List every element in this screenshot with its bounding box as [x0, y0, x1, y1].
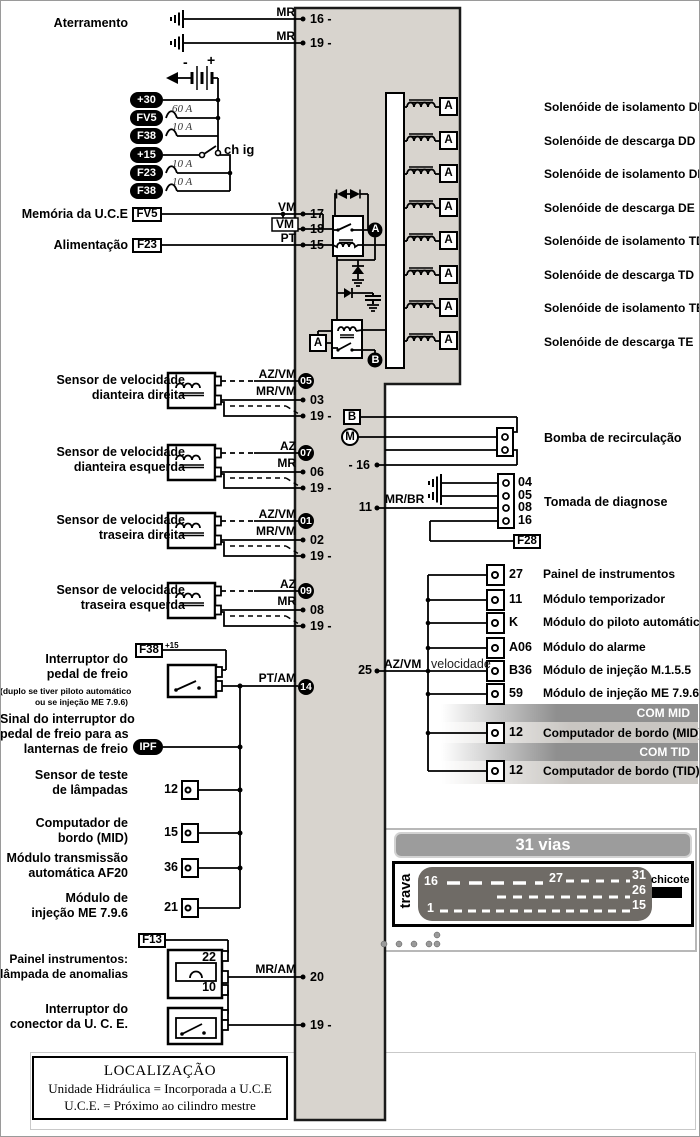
fuse-fv5: FV5	[132, 207, 162, 222]
brake-row3-l1: Módulo de	[0, 891, 128, 905]
ignition-switch-label: ch ig	[224, 143, 254, 157]
brake-row3-l2: injeção ME 7.9.6	[0, 906, 128, 920]
conn31-n1: 1	[427, 901, 434, 915]
brake-circuit	[163, 650, 298, 917]
tag-f38b: F38	[130, 183, 163, 199]
speed-label-4: Módulo de injeção M.1.5.5	[543, 663, 691, 677]
pin-17: 17	[310, 207, 324, 221]
brake-row0-l1: Sensor de teste	[0, 768, 128, 782]
sensor-3-p2: 08	[310, 603, 324, 617]
sensor-3-w2: MR	[246, 594, 296, 608]
sensor-0-l1: Sensor de velocidade	[13, 373, 185, 387]
speed-pin-5: 59	[509, 686, 523, 700]
bomba-label: Bomba de recirculação	[544, 431, 682, 445]
solenoid-label-6: Solenóide de isolamento TE	[544, 301, 700, 315]
conn31-n26: 26	[632, 883, 646, 897]
fuse-rating-10a-2: 10 A	[172, 158, 192, 170]
sensor-2-p3: 19 -	[310, 549, 332, 563]
brake-row0-pin: 12	[150, 782, 178, 796]
battery-plus: +	[207, 53, 215, 67]
speed-label-7: Computador de bordo (TID)	[543, 764, 700, 778]
speed-pin-4: B36	[509, 663, 532, 677]
fuse-f38-brake: F38	[135, 643, 163, 658]
sensor-2-l2: traseira direita	[13, 528, 185, 542]
speed-pin-3: A06	[509, 640, 532, 654]
sol-a-3: A	[440, 199, 457, 215]
solenoid-label-7: Solenóide de descarga TE	[544, 335, 693, 349]
speed-pin-6: 12	[509, 725, 523, 739]
speed-label-6: Computador de bordo (MID)	[543, 726, 700, 740]
speed-label-5: Módulo de injeção ME 7.9.6	[543, 686, 699, 700]
pin-minus16: - 16	[330, 458, 370, 472]
uce-l2: conector da U. C. E.	[0, 1017, 128, 1031]
fuse-f13: F13	[138, 933, 166, 948]
sol-a-2: A	[440, 165, 457, 181]
brake-l1: Interruptor do	[0, 652, 128, 666]
pin-18: 18	[310, 222, 324, 236]
sensor-0-p3: 19 -	[310, 409, 332, 423]
sensor-1-w2: MR	[246, 456, 296, 470]
f38-sup: +15	[165, 639, 179, 653]
decorative-dots	[381, 932, 440, 947]
conn31-n16: 16	[424, 874, 438, 888]
battery-minus: -	[183, 55, 188, 69]
diagnose-label: Tomada de diagnose	[544, 495, 667, 509]
tag-plus30: +30	[130, 92, 163, 108]
pin-20: 20	[310, 970, 324, 984]
brake-row2-pin: 36	[150, 860, 178, 874]
sensor-3-p3: 19 -	[310, 619, 332, 633]
sensor-1-p1: 07	[298, 445, 314, 461]
sensor-0-p1: 05	[298, 373, 314, 389]
solenoid-label-1: Solenóide de descarga DD	[544, 134, 695, 148]
tag-plus15: +15	[130, 147, 163, 163]
sensor-2-p2: 02	[310, 533, 324, 547]
pin-19-uce: 19 -	[310, 1018, 332, 1032]
conn31-n27: 27	[549, 871, 563, 885]
sensor-1-p3: 19 -	[310, 481, 332, 495]
conn31-n15: 15	[632, 898, 646, 912]
speed-label-1: Módulo temporizador	[543, 592, 665, 606]
sol-a-1: A	[440, 132, 457, 148]
fuse-rating-60a: 60 A	[172, 103, 192, 115]
brake-row3-pin: 21	[150, 900, 178, 914]
fuse-rating-10a-3: 10 A	[172, 176, 192, 188]
trava-label: trava	[398, 865, 416, 917]
sensor-1-l2: dianteira esquerda	[13, 460, 185, 474]
diag-pin-08: 08	[518, 500, 532, 514]
brake-row0-l2: de lâmpadas	[0, 783, 128, 797]
connector-pins	[440, 881, 630, 911]
sol-a-6: A	[440, 299, 457, 315]
ground-section-label: Aterramento	[18, 16, 128, 30]
brake-l2: pedal de freio	[0, 667, 128, 681]
badge-a: A	[368, 222, 383, 237]
tag-f23: F23	[130, 165, 163, 181]
brake-s2: pedal de freio para as	[0, 727, 128, 741]
diagnose-circuit	[375, 474, 515, 541]
uce-l1: Interruptor do	[0, 1002, 128, 1016]
speed-label-3: Módulo do alarme	[543, 640, 646, 654]
sensor-2-w2: MR/VM	[246, 524, 296, 538]
sensor-0-w2: MR/VM	[246, 384, 296, 398]
brake-row1-pin: 15	[150, 825, 178, 839]
sensor-0-p2: 03	[310, 393, 324, 407]
sensor-3-p1: 09	[298, 583, 314, 599]
wire-label-mr2: MR	[262, 29, 295, 43]
solenoid-label-3: Solenóide de descarga DE	[544, 201, 695, 215]
brake-row1-l2: bordo (MID)	[0, 831, 128, 845]
sol-a-0: A	[440, 98, 457, 114]
relay-a-box: A	[310, 335, 326, 351]
speed-pin-1: 11	[509, 592, 522, 606]
sensor-3-l1: Sensor de velocidade	[13, 583, 185, 597]
chicote-label: chicote	[651, 873, 690, 887]
solenoid-label-0: Solenóide de isolamento DD	[544, 100, 700, 114]
speed-tag: velocidade	[431, 657, 491, 671]
lamp-pin-22: 22	[194, 950, 216, 964]
memoria-label: Memória da U.C.E	[0, 207, 128, 221]
ipf-tag: IPF	[133, 739, 163, 755]
sensor-1-w1: AZ	[246, 439, 296, 453]
diag-pin-16: 16	[518, 513, 532, 527]
pin-16: 16 -	[310, 12, 332, 26]
fuse-rating-10a-1: 10 A	[172, 121, 192, 133]
option-connectors	[182, 781, 243, 917]
bomba-m-label: M	[342, 430, 358, 444]
pin-14: 14	[298, 679, 314, 695]
wire-azvm: AZ/VM	[384, 657, 421, 671]
tag-f38: F38	[130, 128, 163, 144]
junction-bar	[386, 93, 404, 368]
speed-label-0: Painel de instrumentos	[543, 567, 675, 581]
wire-pt: PT	[268, 231, 296, 245]
sol-a-5: A	[440, 266, 457, 282]
solenoid-label-5: Solenóide de descarga TD	[544, 268, 694, 282]
solenoid-label-4: Solenóide de isolamento TD	[544, 234, 700, 248]
sensor-0-w1: AZ/VM	[246, 367, 296, 381]
wire-mram: MR/AM	[248, 962, 296, 976]
brake-s1: Sinal do interruptor do	[0, 712, 128, 726]
alimentacao-label: Alimentação	[0, 238, 128, 252]
lamp-circuit	[166, 940, 306, 1044]
brake-row1-l1: Computador de	[0, 816, 128, 830]
wire-label-mr1: MR	[262, 5, 295, 19]
sensor-1-l1: Sensor de velocidade	[13, 445, 185, 459]
wire-vm1: VM	[268, 200, 296, 214]
pin-15: 15	[310, 238, 324, 252]
speed-pin-2: K	[509, 615, 518, 629]
wiring-diagram: COM MID COM TID 31 vias LOCALIZAÇÃO Unid…	[0, 0, 700, 1137]
solenoid-label-2: Solenóide de isolamento DE	[544, 167, 700, 181]
sol-a-4: A	[440, 232, 457, 248]
sensor-1-p2: 06	[310, 465, 324, 479]
conn31-n31: 31	[632, 868, 646, 882]
brake-sub1: (duplo se tiver piloto automático	[0, 686, 128, 696]
fuse-f23: F23	[132, 238, 162, 253]
lamp-l1: Painel instrumentos:	[0, 952, 128, 966]
sol-a-7: A	[440, 332, 457, 348]
brake-sub2: ou se injeção ME 7.9.6)	[0, 697, 128, 707]
speed-pin-0: 27	[509, 567, 523, 581]
brake-row2-l2: automática AF20	[0, 866, 128, 880]
wire-ptam: PT/AM	[248, 671, 296, 685]
tag-fv5: FV5	[130, 110, 163, 126]
sensor-0-l2: dianteira direita	[13, 388, 185, 402]
pin-19: 19 -	[310, 36, 332, 50]
bomba-b-box: B	[344, 410, 360, 424]
speed-pin-7: 12	[509, 763, 523, 777]
sensor-3-l2: traseira esquerda	[13, 598, 185, 612]
lamp-l2: lâmpada de anomalias	[0, 967, 128, 981]
fuse-f28: F28	[513, 534, 541, 549]
speed-label-2: Módulo do piloto automático	[543, 615, 700, 629]
sensor-3-w1: AZ	[246, 577, 296, 591]
wire-vm2: VM	[272, 217, 298, 231]
lamp-pin-10: 10	[194, 980, 216, 994]
pin-11: 11	[336, 500, 372, 514]
sensor-2-p1: 01	[298, 513, 314, 529]
pin-25: 25	[336, 663, 372, 677]
brake-s3: lanternas de freio	[0, 742, 128, 756]
diag-pin-04: 04	[518, 475, 532, 489]
wire-mrbr: MR/BR	[385, 492, 424, 506]
speed-signal-tree	[375, 565, 505, 781]
brake-switch-icon	[168, 665, 216, 697]
brake-row2-l1: Módulo transmissão	[0, 851, 128, 865]
sensor-2-l1: Sensor de velocidade	[13, 513, 185, 527]
badge-b: B	[368, 353, 383, 368]
sensor-2-w1: AZ/VM	[246, 507, 296, 521]
